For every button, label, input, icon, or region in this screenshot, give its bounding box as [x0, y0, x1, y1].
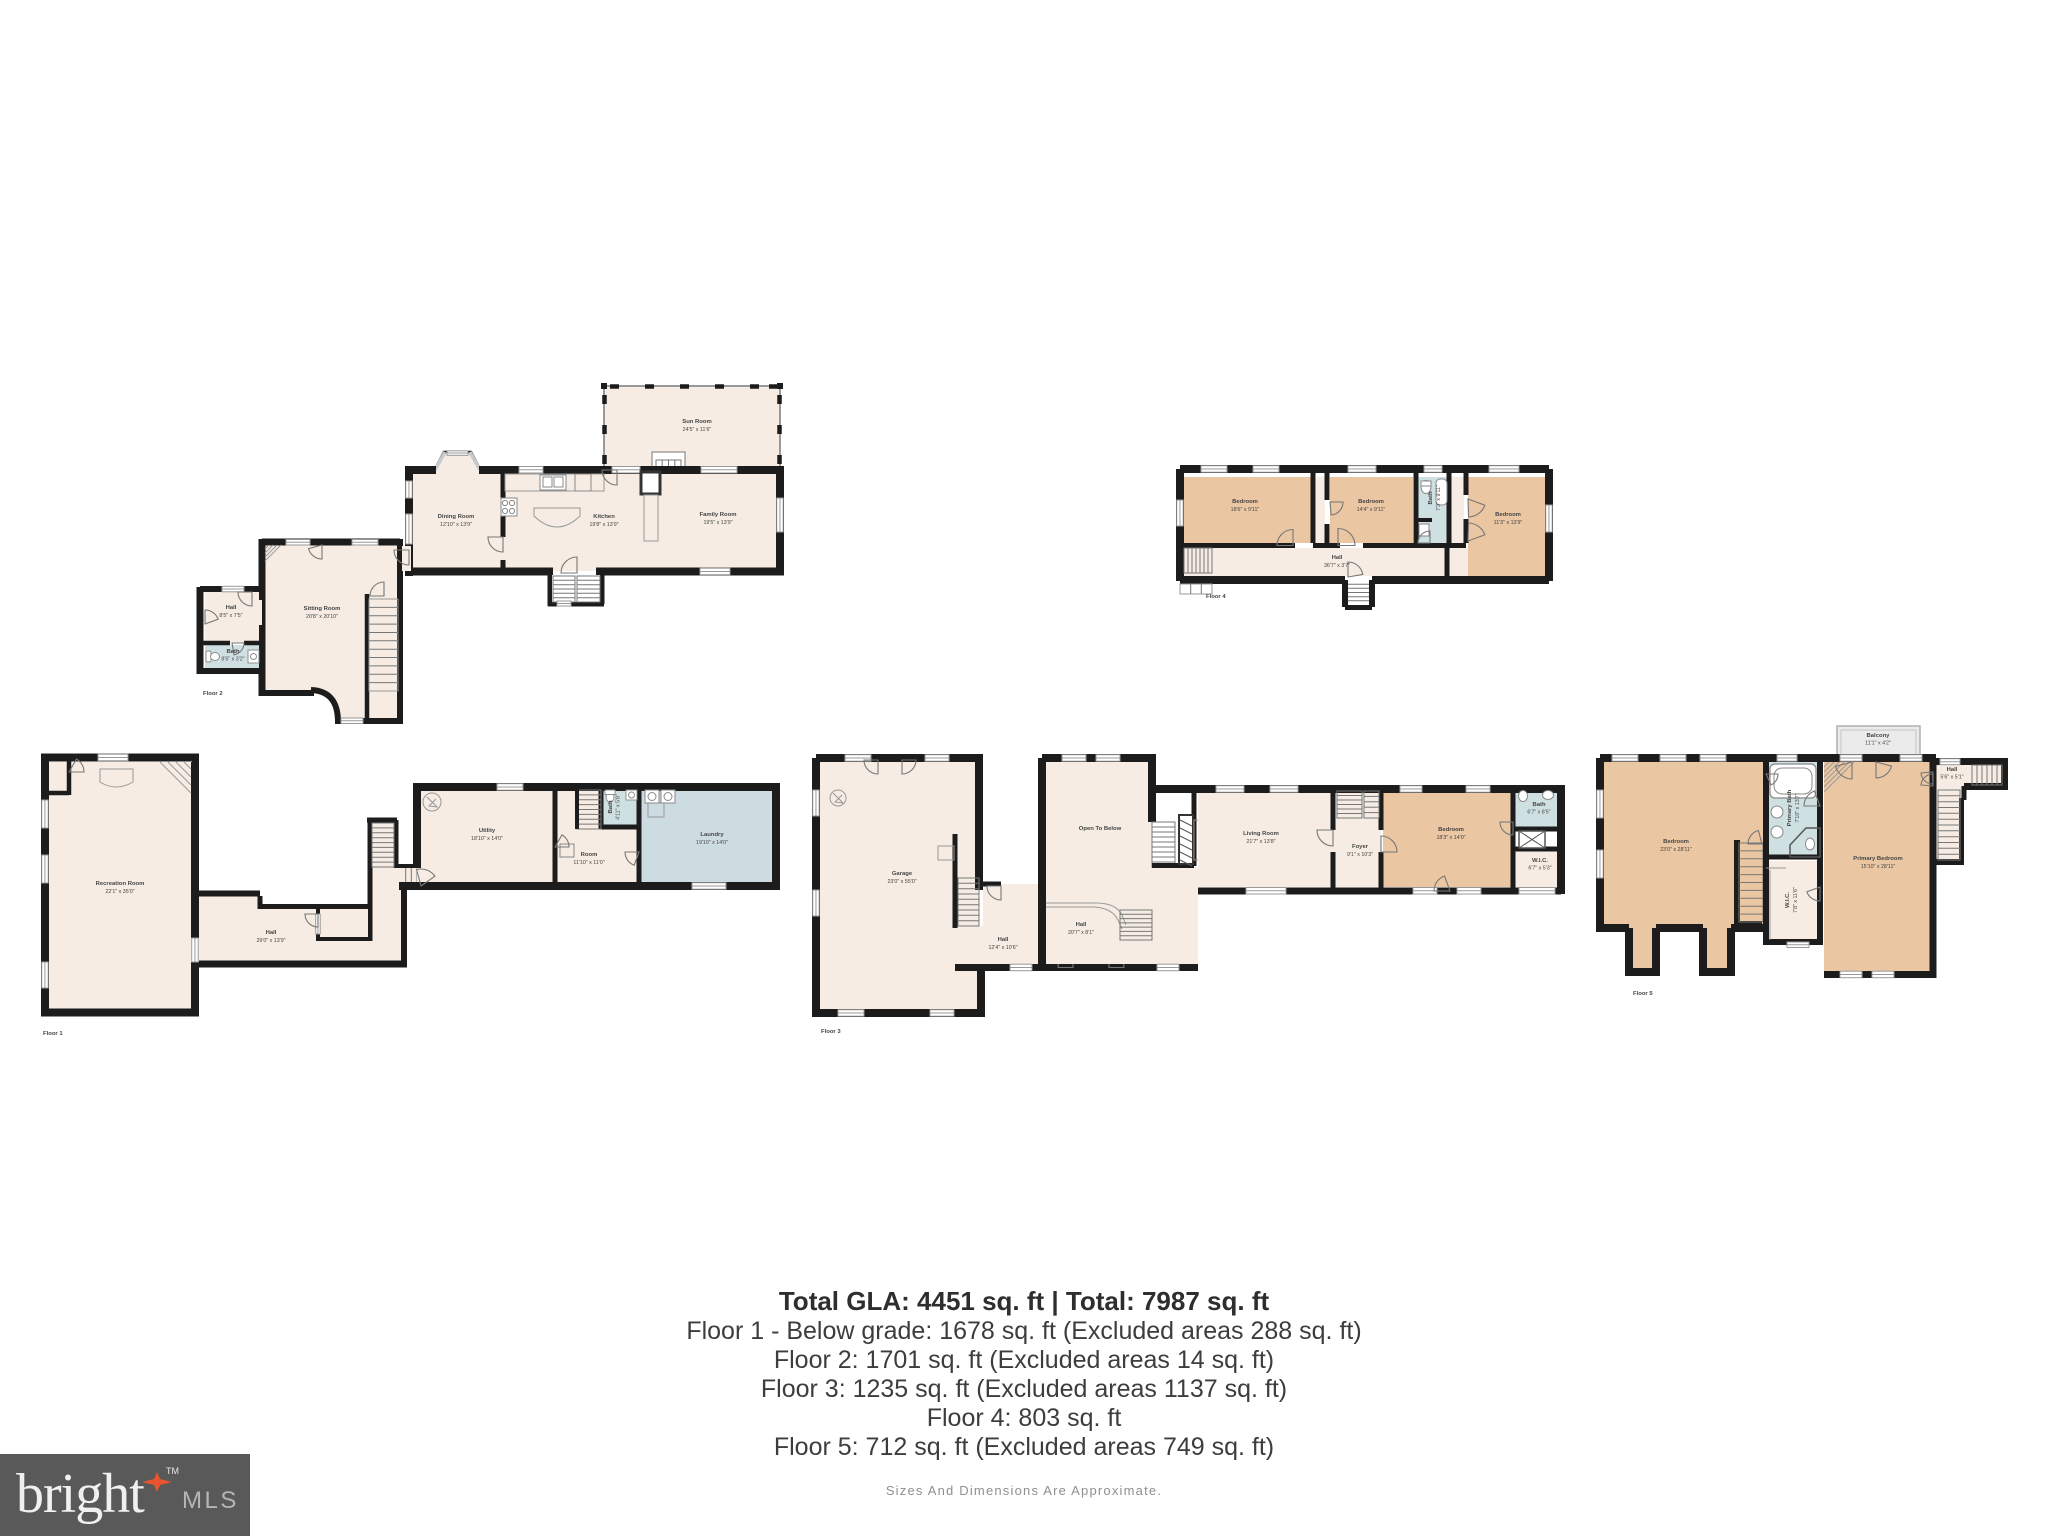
svg-text:9'1" x 10'3": 9'1" x 10'3": [1347, 852, 1373, 858]
svg-text:Sun Room: Sun Room: [682, 419, 711, 425]
svg-text:Laundry: Laundry: [700, 832, 724, 838]
svg-text:Primary Bath: Primary Bath: [1787, 789, 1793, 826]
svg-text:Hall: Hall: [266, 930, 277, 936]
svg-text:4'11" x 5'8": 4'11" x 5'8": [616, 794, 622, 820]
svg-text:29'0" x 13'9": 29'0" x 13'9": [256, 938, 285, 944]
svg-text:7'8" x 11'6": 7'8" x 11'6": [1793, 887, 1799, 913]
svg-text:8'5" x 3'2": 8'5" x 3'2": [221, 657, 244, 663]
svg-text:Living Room: Living Room: [1243, 831, 1279, 837]
svg-text:12'10" x 13'9": 12'10" x 13'9": [440, 522, 472, 528]
svg-text:Hall: Hall: [998, 937, 1009, 943]
svg-text:Floor 4: Floor 4: [1206, 594, 1226, 600]
svg-text:18'3" x 14'0": 18'3" x 14'0": [1436, 835, 1465, 841]
svg-text:Floor 2: Floor 2: [203, 691, 223, 697]
svg-text:Dining Room: Dining Room: [438, 514, 475, 520]
svg-text:7'3" x 9'11": 7'3" x 9'11": [1436, 485, 1442, 511]
svg-text:Kitchen: Kitchen: [593, 514, 615, 520]
svg-text:Garage: Garage: [892, 871, 913, 877]
svg-text:22'1" x 35'0": 22'1" x 35'0": [105, 889, 134, 895]
svg-text:19'5" x 13'9": 19'5" x 13'9": [703, 520, 732, 526]
svg-text:Family Room: Family Room: [700, 512, 737, 518]
svg-text:18'6" x 9'11": 18'6" x 9'11": [1231, 507, 1260, 513]
svg-text:W.I.C.: W.I.C.: [1785, 892, 1791, 908]
svg-text:5'6" x 5'1": 5'6" x 5'1": [1940, 775, 1963, 781]
svg-text:W.I.C.: W.I.C.: [1532, 858, 1548, 864]
svg-text:36'7" x 3'7": 36'7" x 3'7": [1324, 563, 1350, 569]
svg-text:Sitting Room: Sitting Room: [304, 606, 341, 612]
svg-text:14'4" x 9'11": 14'4" x 9'11": [1357, 507, 1386, 513]
svg-text:Bath: Bath: [1428, 491, 1434, 504]
svg-text:Hall: Hall: [226, 605, 237, 611]
svg-text:Foyer: Foyer: [1352, 844, 1369, 850]
svg-text:Room: Room: [581, 852, 598, 858]
svg-text:15'10" x 28'11": 15'10" x 28'11": [1861, 864, 1896, 870]
svg-text:Bath: Bath: [608, 800, 614, 813]
svg-text:21'7" x 13'8": 21'7" x 13'8": [1246, 839, 1275, 845]
svg-text:23'0" x 55'0": 23'0" x 55'0": [887, 879, 916, 885]
svg-text:Hall: Hall: [1076, 922, 1087, 928]
svg-text:Bedroom: Bedroom: [1495, 512, 1521, 518]
svg-text:Bath: Bath: [226, 649, 239, 655]
svg-text:23'0" x 28'11": 23'0" x 28'11": [1660, 847, 1692, 853]
svg-text:Bedroom: Bedroom: [1358, 499, 1384, 505]
svg-text:Bath: Bath: [1532, 802, 1545, 808]
svg-text:20'7" x 8'1": 20'7" x 8'1": [1068, 930, 1094, 936]
svg-text:19'10" x 14'0": 19'10" x 14'0": [696, 840, 728, 846]
svg-text:11'1" x 4'2": 11'1" x 4'2": [1865, 741, 1891, 747]
svg-text:11'10" x 11'0": 11'10" x 11'0": [573, 860, 604, 866]
svg-text:Bedroom: Bedroom: [1438, 827, 1464, 833]
svg-text:7'10" x 13'7": 7'10" x 13'7": [1795, 793, 1801, 822]
svg-text:11'3" x 13'9": 11'3" x 13'9": [1494, 520, 1523, 526]
svg-text:Recreation Room: Recreation Room: [96, 881, 145, 887]
svg-text:Bedroom: Bedroom: [1232, 499, 1258, 505]
svg-text:Balcony: Balcony: [1867, 733, 1891, 739]
svg-text:Floor 5: Floor 5: [1633, 991, 1653, 997]
svg-text:Floor 3: Floor 3: [821, 1029, 841, 1035]
svg-text:6'7" x 8'5": 6'7" x 8'5": [1527, 810, 1550, 816]
svg-text:8'5" x 7'5": 8'5" x 7'5": [219, 613, 242, 619]
svg-text:Bedroom: Bedroom: [1663, 839, 1689, 845]
svg-text:Utility: Utility: [479, 828, 496, 834]
svg-text:24'5" x 11'6": 24'5" x 11'6": [683, 427, 712, 433]
svg-text:Hall: Hall: [1947, 767, 1958, 773]
svg-text:20'8" x 20'10": 20'8" x 20'10": [306, 614, 338, 620]
svg-text:19'8" x 13'9": 19'8" x 13'9": [589, 522, 618, 528]
svg-text:Floor 1: Floor 1: [43, 1031, 63, 1037]
svg-text:18'10" x 14'0": 18'10" x 14'0": [471, 836, 503, 842]
svg-text:Open To Below: Open To Below: [1079, 826, 1122, 832]
svg-text:Hall: Hall: [1332, 555, 1343, 561]
svg-text:12'4" x 10'6": 12'4" x 10'6": [988, 945, 1017, 951]
svg-text:6'7" x 5'3": 6'7" x 5'3": [1528, 866, 1551, 872]
svg-text:Primary Bedroom: Primary Bedroom: [1853, 856, 1902, 862]
